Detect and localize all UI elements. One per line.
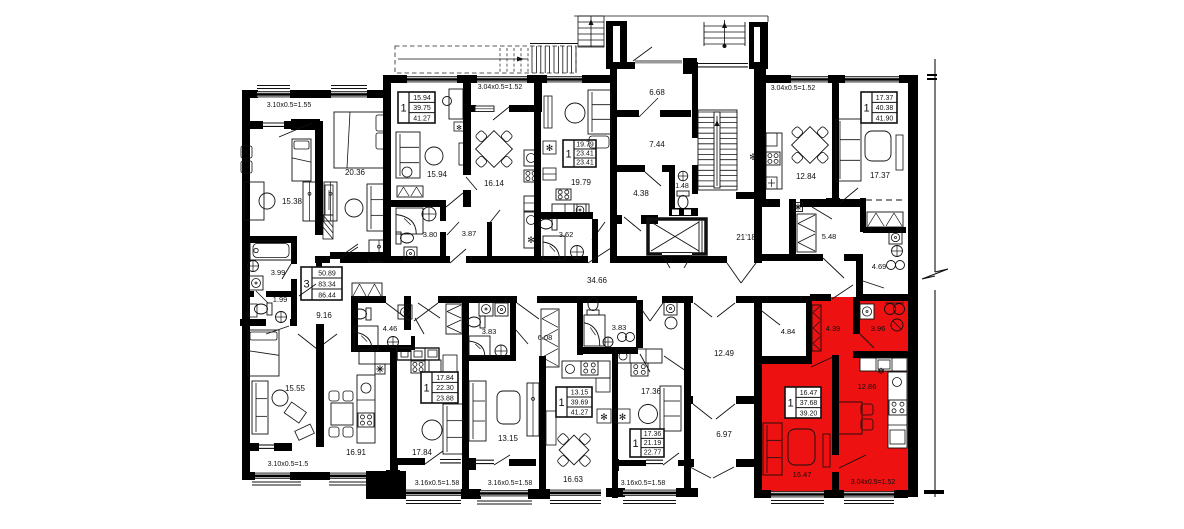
svg-text:✻: ✻ [546, 143, 554, 153]
svg-text:15.94: 15.94 [427, 170, 448, 179]
svg-text:3.16x0.5=1.58: 3.16x0.5=1.58 [415, 480, 460, 487]
svg-text:23.88: 23.88 [436, 396, 454, 403]
svg-text:3.83: 3.83 [482, 327, 497, 336]
svg-text:23.41: 23.41 [576, 160, 594, 167]
svg-text:86.44: 86.44 [318, 293, 336, 300]
svg-text:3.96: 3.96 [871, 324, 886, 333]
svg-text:15.55: 15.55 [285, 384, 306, 393]
svg-text:4.46: 4.46 [383, 324, 398, 333]
svg-text:21.19: 21.19 [644, 440, 662, 447]
svg-text:3.83: 3.83 [612, 323, 627, 332]
svg-text:1: 1 [632, 438, 638, 450]
svg-text:6.97: 6.97 [716, 430, 732, 439]
svg-text:1: 1 [423, 383, 429, 395]
svg-text:17.36: 17.36 [644, 431, 662, 438]
svg-text:41.27: 41.27 [571, 410, 589, 417]
svg-text:3.04x0.5=1.52: 3.04x0.5=1.52 [851, 479, 896, 486]
svg-text:39.20: 39.20 [800, 411, 818, 418]
svg-text:1: 1 [565, 149, 571, 161]
svg-text:6.68: 6.68 [649, 88, 665, 97]
svg-text:3.99: 3.99 [271, 268, 286, 277]
svg-text:7.44: 7.44 [649, 140, 665, 149]
svg-text:✻: ✻ [749, 152, 757, 162]
svg-text:15.94: 15.94 [413, 95, 431, 102]
svg-text:37.68: 37.68 [800, 400, 818, 407]
svg-text:6.08: 6.08 [538, 333, 553, 342]
svg-text:1: 1 [558, 397, 564, 409]
svg-text:12.84: 12.84 [796, 172, 817, 181]
svg-text:✻: ✻ [619, 412, 627, 422]
svg-text:17.84: 17.84 [412, 448, 433, 457]
svg-text:1: 1 [787, 398, 793, 410]
svg-text:13.15: 13.15 [571, 390, 589, 397]
svg-text:16.14: 16.14 [484, 179, 505, 188]
svg-text:13.15: 13.15 [498, 434, 519, 443]
svg-text:19.79: 19.79 [571, 178, 592, 187]
svg-text:17.37: 17.37 [876, 95, 894, 102]
svg-text:3.16x0.5=1.58: 3.16x0.5=1.58 [488, 480, 533, 487]
svg-text:3.16x0.5=1.58: 3.16x0.5=1.58 [621, 480, 666, 487]
svg-text:40.38: 40.38 [876, 105, 894, 112]
svg-text:5.48: 5.48 [822, 232, 837, 241]
svg-text:9.16: 9.16 [316, 311, 332, 320]
svg-text:3.10x0.5=1.55: 3.10x0.5=1.55 [267, 102, 312, 109]
svg-text:39.75: 39.75 [413, 105, 431, 112]
svg-text:41.27: 41.27 [413, 116, 431, 123]
svg-text:16.47: 16.47 [793, 470, 812, 479]
svg-text:✻: ✻ [527, 235, 535, 245]
svg-text:✻: ✻ [456, 124, 462, 132]
svg-text:3.80: 3.80 [423, 230, 438, 239]
svg-text:4.69: 4.69 [872, 262, 887, 271]
svg-text:15.38: 15.38 [282, 197, 303, 206]
svg-text:3.04x0.5=1.52: 3.04x0.5=1.52 [478, 84, 523, 91]
svg-text:1.99: 1.99 [273, 295, 288, 304]
svg-text:✻: ✻ [877, 366, 884, 376]
svg-text:4.84: 4.84 [781, 327, 796, 336]
svg-text:83.34: 83.34 [318, 282, 336, 289]
svg-text:4.39: 4.39 [826, 324, 841, 333]
svg-text:34.66: 34.66 [587, 276, 608, 285]
svg-text:23.41: 23.41 [576, 151, 594, 158]
svg-text:3.87: 3.87 [462, 229, 477, 238]
svg-text:3.10x0.5=1.5: 3.10x0.5=1.5 [268, 461, 309, 468]
svg-text:3.62: 3.62 [559, 230, 574, 239]
svg-text:16.63: 16.63 [563, 475, 584, 484]
svg-text:3.04x0.5=1.52: 3.04x0.5=1.52 [771, 85, 816, 92]
svg-text:12.49: 12.49 [714, 349, 735, 358]
svg-text:41.90: 41.90 [876, 116, 894, 123]
svg-text:17.37: 17.37 [870, 171, 891, 180]
svg-text:1: 1 [863, 103, 869, 115]
svg-text:39.69: 39.69 [571, 400, 589, 407]
svg-text:19.79: 19.79 [576, 142, 594, 149]
svg-text:22.30: 22.30 [436, 385, 454, 392]
svg-text:12.86: 12.86 [858, 382, 877, 391]
svg-text:22.77: 22.77 [644, 450, 662, 457]
svg-text:50.89: 50.89 [318, 271, 336, 278]
svg-text:1: 1 [400, 103, 406, 115]
svg-text:20.36: 20.36 [345, 168, 366, 177]
svg-text:4.38: 4.38 [633, 189, 649, 198]
svg-text:16.47: 16.47 [800, 390, 818, 397]
svg-text:✻: ✻ [600, 412, 608, 422]
svg-text:1.48: 1.48 [675, 183, 689, 190]
svg-text:21’18: 21’18 [736, 233, 756, 242]
svg-text:16.91: 16.91 [346, 448, 367, 457]
svg-text:17.36: 17.36 [641, 387, 662, 396]
svg-text:17.84: 17.84 [436, 375, 454, 382]
